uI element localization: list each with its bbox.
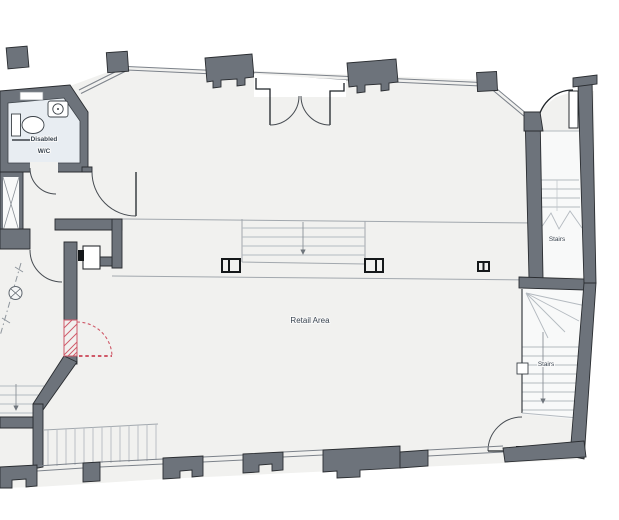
retail-floor — [0, 66, 596, 488]
bottom-pillar-2 — [83, 462, 100, 482]
riser-box-duct — [78, 250, 84, 261]
floor-plan-canvas: Disabled W/C Retail Area Stairs Stairs — [0, 0, 619, 520]
service-wall-chunk — [0, 229, 30, 249]
disabled-wc-label-line2: W/C — [38, 148, 51, 155]
stairs-lower-label: Stairs — [538, 361, 554, 368]
upper-stairwell-floor — [540, 131, 584, 277]
upper-stairwell — [539, 131, 584, 277]
corner-elbow — [524, 112, 543, 131]
lower-left-wall-horizontal — [0, 417, 33, 428]
lower-left-wall-vertical — [33, 404, 43, 469]
sink-icon — [48, 101, 68, 117]
riser-box — [83, 246, 100, 269]
stairs-upper-label: Stairs — [549, 236, 565, 243]
corridor-wall-vertical — [112, 219, 122, 268]
bottom-pillar-5 — [323, 446, 400, 478]
lobby-wall-stub — [82, 167, 92, 172]
stairwell-hatch-door — [517, 363, 528, 374]
floor-plan-drawing: Disabled W/C Retail Area Stairs Stairs — [0, 0, 619, 520]
bottom-pillar-6 — [400, 450, 428, 468]
disabled-wc-label-line1: Disabled — [31, 136, 58, 143]
wc-door-opening — [30, 162, 58, 173]
right-wall-top-step — [573, 75, 597, 87]
wc-window-niche — [20, 92, 43, 100]
retail-area-label: Retail Area — [290, 316, 330, 325]
dividing-wall-upper — [64, 242, 77, 320]
corner-door-leaf — [569, 91, 578, 128]
corner-pillar-c — [477, 71, 498, 91]
stairwell-separating-wall — [519, 277, 585, 290]
corner-pillar-b — [106, 51, 128, 72]
corner-pillar-a — [6, 46, 29, 69]
